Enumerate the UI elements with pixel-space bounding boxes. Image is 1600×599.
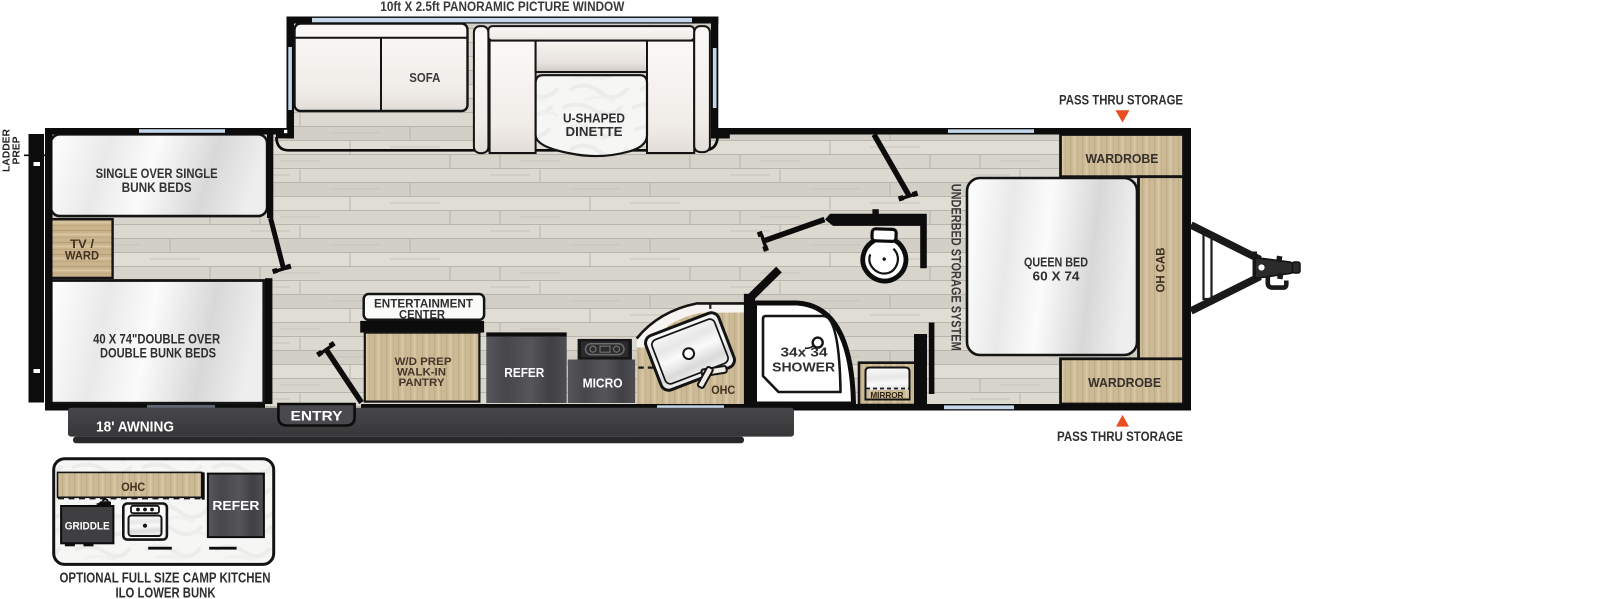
svg-text:PANTRY: PANTRY: [399, 377, 445, 389]
svg-text:QUEEN BED: QUEEN BED: [1024, 254, 1088, 269]
svg-text:ILO LOWER BUNK: ILO LOWER BUNK: [116, 585, 216, 599]
svg-text:10ft X 2.5ft PANORAMIC PICTURE: 10ft X 2.5ft PANORAMIC PICTURE WINDOW: [380, 0, 624, 14]
svg-text:WARDROBE: WARDROBE: [1088, 376, 1161, 390]
svg-text:DINETTE: DINETTE: [566, 124, 623, 139]
svg-text:SINGLE OVER SINGLE: SINGLE OVER SINGLE: [96, 166, 218, 181]
svg-text:UNDERBED STORAGE SYSTEM: UNDERBED STORAGE SYSTEM: [949, 184, 964, 351]
svg-text:SHOWER: SHOWER: [772, 361, 835, 375]
svg-text:OHC: OHC: [121, 480, 145, 494]
svg-text:SOFA: SOFA: [409, 71, 440, 85]
svg-text:CENTER: CENTER: [399, 308, 445, 322]
svg-text:MIRROR: MIRROR: [870, 390, 903, 400]
svg-text:ENTRY: ENTRY: [291, 408, 343, 423]
svg-text:GRIDDLE: GRIDDLE: [65, 521, 110, 533]
svg-text:PASS THRU STORAGE: PASS THRU STORAGE: [1057, 429, 1183, 444]
svg-text:BUNK BEDS: BUNK BEDS: [122, 180, 192, 195]
svg-text:PASS THRU STORAGE: PASS THRU STORAGE: [1059, 93, 1183, 108]
svg-text:18' AWNING: 18' AWNING: [96, 420, 174, 436]
svg-text:60 X 74: 60 X 74: [1033, 268, 1081, 283]
svg-text:REFER: REFER: [504, 366, 544, 380]
svg-text:MICRO: MICRO: [583, 377, 623, 391]
svg-text:WARDROBE: WARDROBE: [1086, 152, 1159, 166]
svg-text:OPTIONAL FULL SIZE CAMP KITCHE: OPTIONAL FULL SIZE CAMP KITCHEN: [60, 570, 271, 586]
svg-text:OHC: OHC: [711, 383, 735, 397]
svg-text:REFER: REFER: [212, 498, 260, 513]
svg-text:OH CAB: OH CAB: [1154, 248, 1168, 293]
svg-text:PREP: PREP: [12, 136, 23, 164]
svg-text:34x 34: 34x 34: [781, 346, 828, 360]
svg-text:40 X 74"DOUBLE OVER: 40 X 74"DOUBLE OVER: [93, 332, 220, 347]
svg-text:DOUBLE BUNK BEDS: DOUBLE BUNK BEDS: [100, 346, 216, 361]
svg-text:WARD: WARD: [65, 249, 99, 262]
